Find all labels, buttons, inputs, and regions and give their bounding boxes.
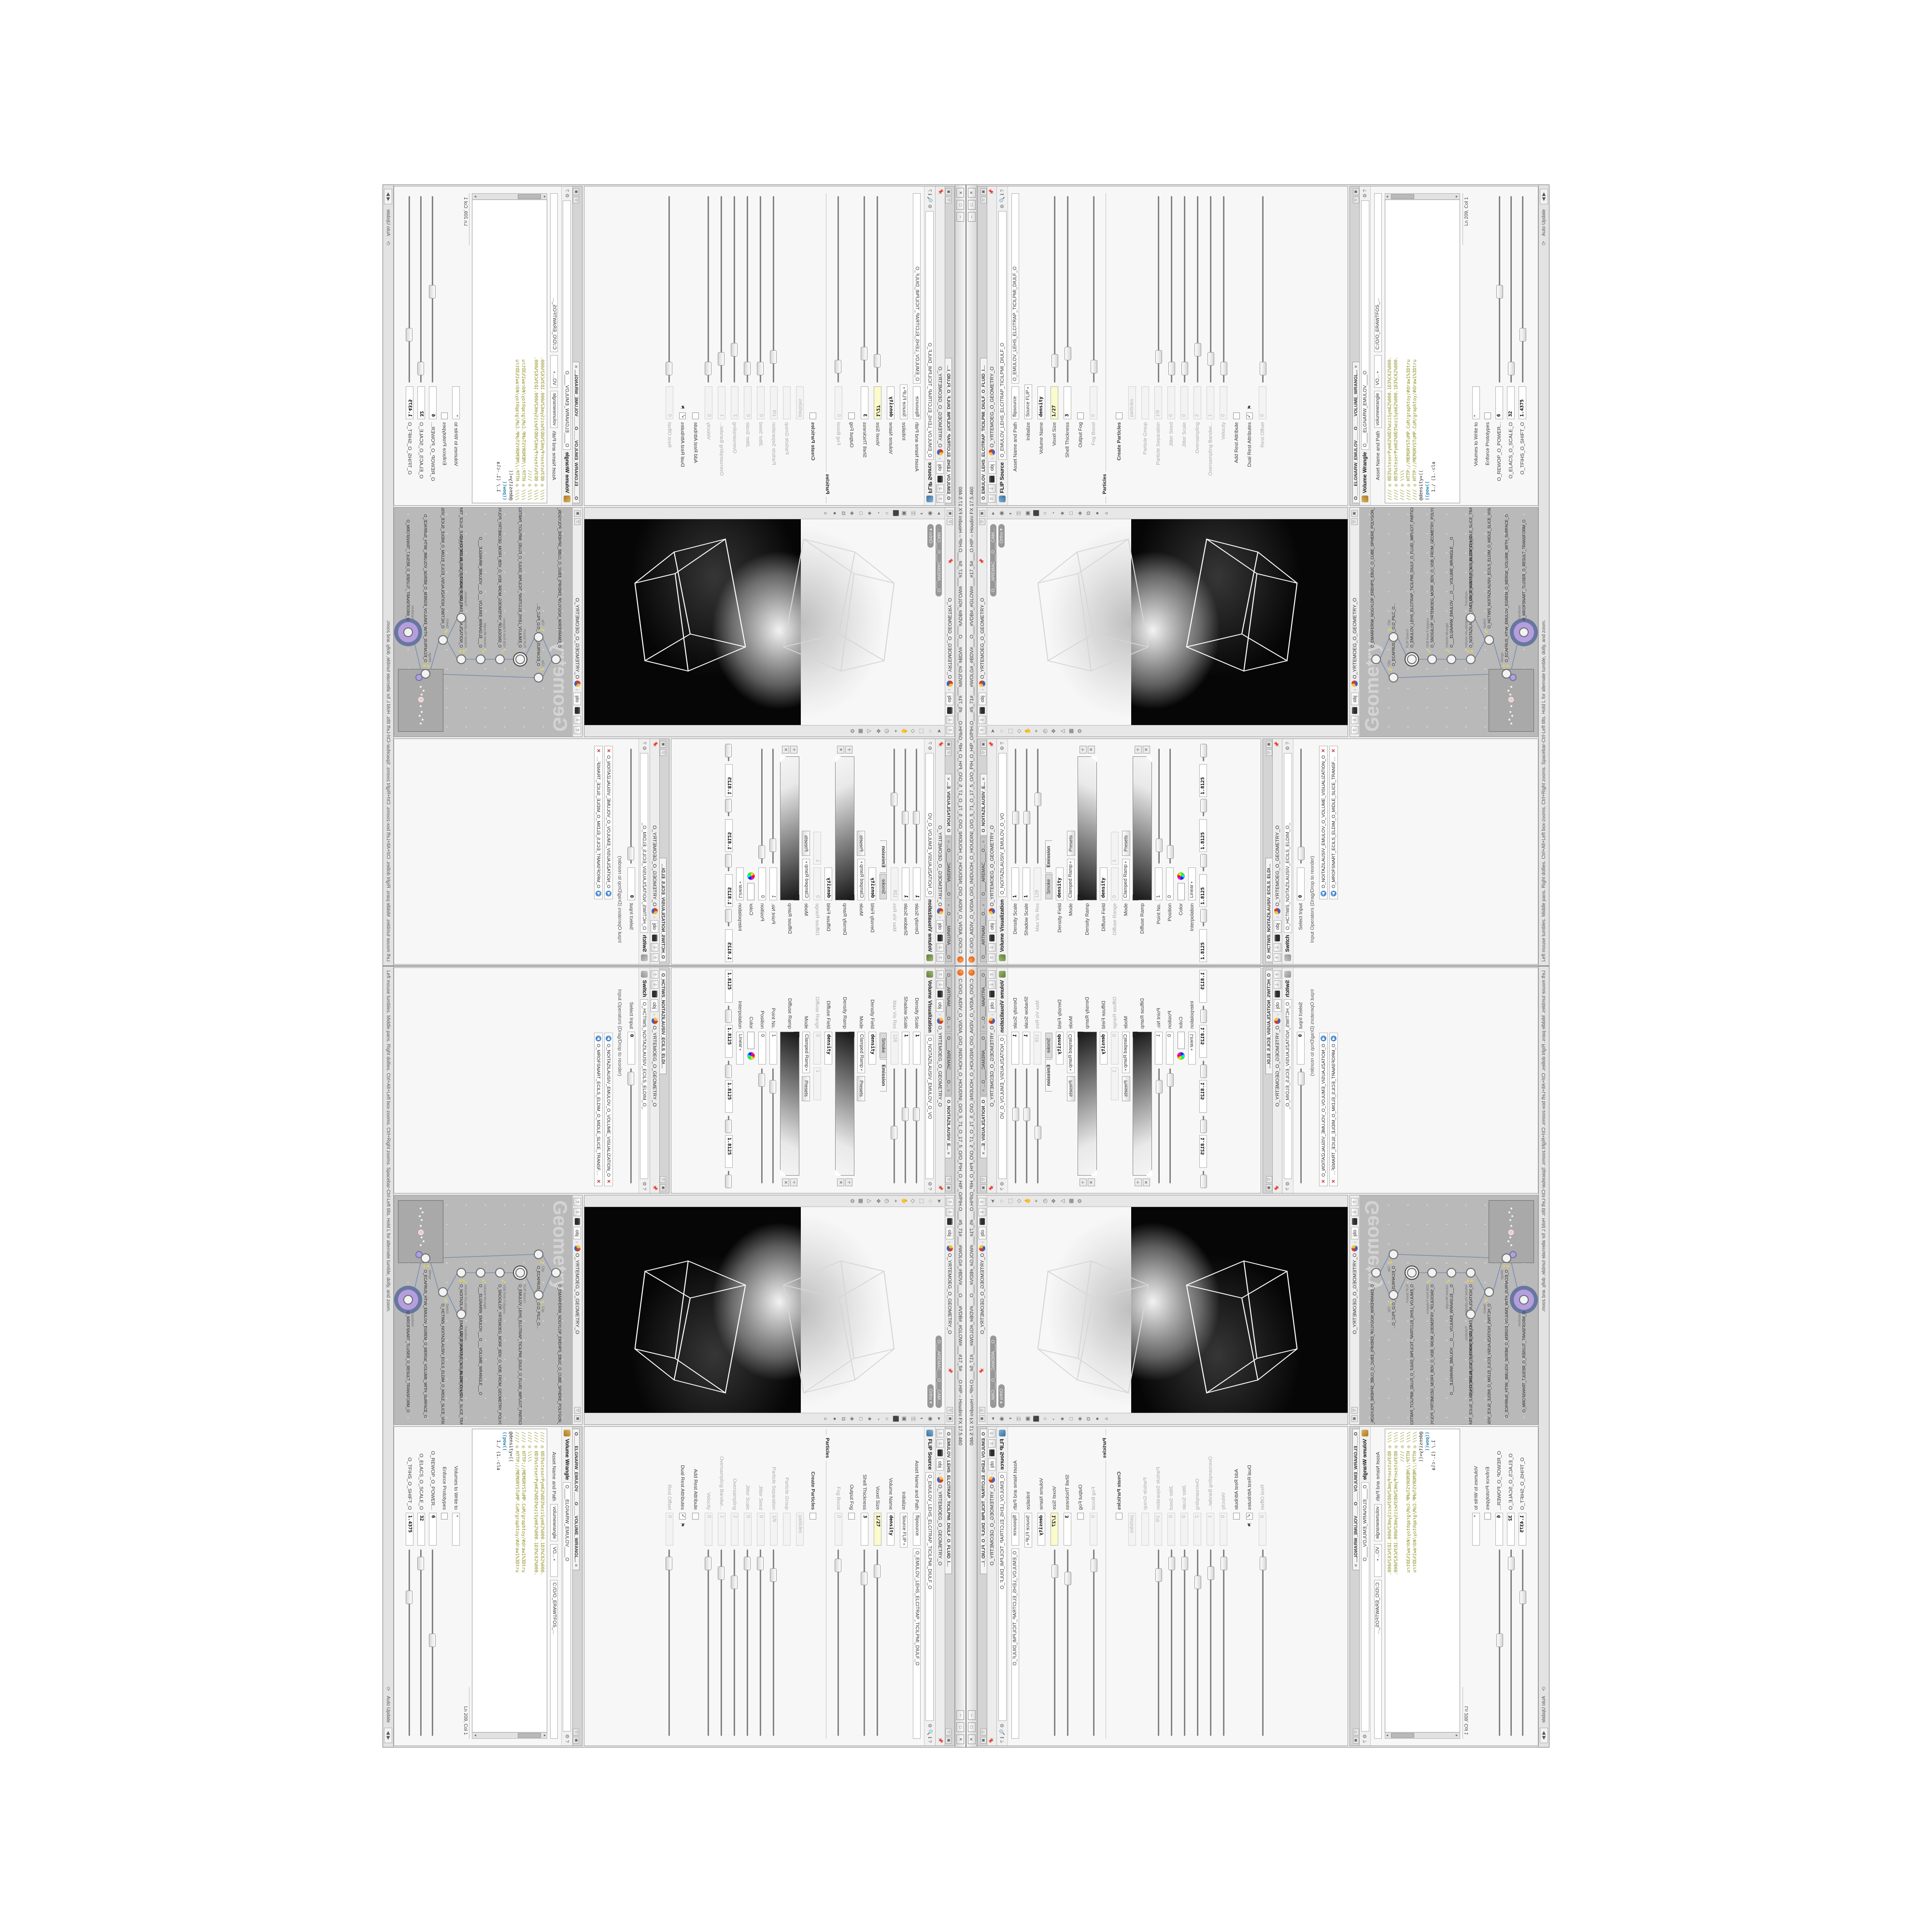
dropdown-field[interactable]: Linear (736, 867, 744, 900)
corner-scroll-chip[interactable]: ◀ ▶ (384, 1728, 392, 1743)
network-node[interactable] (515, 1268, 525, 1278)
delete-point-button[interactable]: ✕ (782, 1179, 789, 1186)
value-field[interactable]: 1 (1155, 1032, 1163, 1065)
breadcrumb-context[interactable]: obj (979, 693, 986, 705)
presets-button[interactable]: Presets (857, 831, 866, 856)
pane-maximize-icon[interactable]: ▣ (947, 1415, 953, 1422)
slider-handle[interactable] (913, 1108, 920, 1121)
viewport-tool-icon[interactable]: ▸ (936, 1418, 942, 1421)
viewport-tool-icon[interactable]: ▣ (1025, 511, 1031, 515)
value-field[interactable]: particles (1128, 386, 1136, 419)
library-path-field[interactable]: C:/O/O_ERAWTFOS_... (550, 1580, 558, 1739)
nav-up-icon[interactable]: ⇧ (574, 726, 582, 734)
ramp-handle[interactable] (1078, 1032, 1083, 1037)
help-icon[interactable]: ? (1000, 1187, 1005, 1190)
delete-point-button[interactable]: ✕ (1143, 1179, 1150, 1186)
viewport-tool-icon[interactable]: ▦ (858, 1198, 864, 1203)
node-flag-dot[interactable] (423, 1265, 426, 1267)
camera-pill[interactable]: Ortho ▾ (998, 524, 1005, 548)
param-slider[interactable] (1093, 1549, 1094, 1736)
network-node[interactable] (1407, 1268, 1417, 1278)
nav-down-icon[interactable]: ⇩ (1274, 980, 1281, 989)
viewport-tool-icon[interactable]: ● (1094, 511, 1100, 515)
viewport-tool-icon[interactable]: ▸ (990, 1418, 996, 1421)
ramp-handle[interactable] (1091, 756, 1097, 762)
value-field[interactable]: 0 (627, 867, 635, 900)
value-field[interactable]: 1/9 (770, 1513, 778, 1546)
pane-tab[interactable]: O_HCTIWS_NOITAZILAUSIV_ECILS_ELDIM_O_MID… (660, 858, 667, 962)
camera-pill[interactable]: O___AREMAC___O___CAM... (990, 1335, 996, 1408)
code-scrollbar[interactable]: ▲▼ (1385, 1733, 1460, 1739)
folder-tab[interactable]: Emission (1045, 1059, 1052, 1091)
slider-handle[interactable] (406, 1591, 413, 1604)
value-field[interactable]: 0 (1297, 867, 1305, 900)
search-icon[interactable]: 🔍 (1000, 1729, 1005, 1735)
viewport-tool-icon[interactable]: ⌖ (1034, 1199, 1039, 1202)
node-flag-dot[interactable] (427, 1265, 429, 1267)
camera-pill[interactable]: Ortho ▾ (927, 524, 934, 548)
value-field[interactable]: 0 (744, 1513, 752, 1546)
param-slider[interactable] (838, 1549, 839, 1736)
param-slider[interactable] (1203, 1171, 1204, 1183)
viewport-tool-icon[interactable]: ✋ (901, 728, 907, 735)
network-minimap[interactable] (1489, 1200, 1534, 1263)
value-field[interactable]: 2 (1193, 1513, 1201, 1546)
sync-icon[interactable]: ⟳ (1541, 241, 1547, 245)
maximize-button[interactable]: □ (968, 200, 976, 210)
help-icon[interactable]: ? (565, 1740, 570, 1743)
network-node[interactable] (403, 627, 413, 637)
pane-tab[interactable]: O____ARTNAM____O...✕ (980, 900, 987, 962)
asset-name-field[interactable]: flipsource (913, 386, 921, 419)
ramp-handle[interactable] (780, 756, 786, 762)
pane-collapse-icon[interactable]: ▽ (660, 749, 666, 756)
viewport-tool-icon[interactable]: ⬛ (1034, 1416, 1039, 1422)
pin-icon[interactable]: 📌 (938, 1737, 943, 1743)
value-field[interactable]: 1 (1023, 1032, 1030, 1065)
folder-tab[interactable]: Emission (1045, 840, 1052, 872)
asset-path-field[interactable]: O_EMULOV_LEHS_ELCITRAP_TICILPMI_DIULF_O (913, 1548, 921, 1739)
param-slider[interactable] (747, 1549, 749, 1736)
value-field[interactable]: * (452, 1513, 460, 1546)
slider-handle[interactable] (874, 354, 881, 368)
delete-point-button[interactable]: ✕ (782, 746, 789, 753)
remove-input-icon[interactable]: ✕ (606, 749, 611, 753)
gear-icon[interactable]: ⚙ (1000, 1723, 1005, 1728)
run-over-dropdown[interactable]: VO... (550, 355, 558, 388)
slider-handle[interactable] (705, 362, 712, 375)
gear-icon[interactable]: ⚙ (1363, 1734, 1368, 1738)
param-slider[interactable] (1210, 1549, 1211, 1736)
value-field[interactable]: 1/9 (770, 386, 778, 419)
ramp-handle[interactable] (1091, 1170, 1097, 1176)
nav-up-icon[interactable]: ⇧ (1351, 726, 1359, 734)
viewport-tool-icon[interactable]: ▣ (901, 511, 907, 515)
viewport-tool-icon[interactable]: ⌖ (1034, 729, 1039, 732)
network-node[interactable] (534, 632, 543, 642)
value-field[interactable]: 2 (1193, 386, 1201, 419)
add-point-button[interactable]: ＋ (845, 746, 852, 753)
pane-tab[interactable]: O_EMULOV_LEHS_ELCITRAP_TICILPMI_DIULF_O_… (980, 1429, 987, 1574)
slider-handle[interactable] (1168, 362, 1175, 375)
pane-maximize-icon[interactable]: ▣ (980, 1737, 987, 1744)
color-wheel-icon[interactable] (1177, 872, 1185, 880)
slider-handle[interactable] (418, 362, 425, 375)
slider-handle[interactable] (1200, 909, 1207, 923)
dropdown-field[interactable]: Source FLIP (900, 1513, 908, 1548)
value-field[interactable]: 0 (1167, 1513, 1175, 1546)
network-canvas[interactable]: Geometry O_EMARFERIW_NOGYLOP_EREHPS_EBUC… (1360, 1195, 1538, 1424)
checkbox[interactable] (1484, 1513, 1491, 1520)
param-slider[interactable] (1037, 749, 1038, 864)
minimize-button[interactable]: – (957, 1710, 965, 1720)
slider-handle[interactable] (1200, 744, 1207, 757)
viewport-tool-icon[interactable]: ★ (1060, 511, 1065, 516)
breadcrumb-context[interactable]: obj (1351, 693, 1359, 705)
pane-maximize-icon[interactable]: ▣ (947, 510, 953, 517)
help-icon[interactable]: ? (927, 189, 933, 192)
slider-handle[interactable] (1051, 1564, 1058, 1578)
viewport-tool-icon[interactable]: □ (1068, 511, 1074, 515)
checkbox[interactable] (848, 1513, 855, 1520)
asset-name-field[interactable]: volumewrangle (550, 1504, 558, 1541)
slider-handle[interactable] (1065, 347, 1071, 360)
value-field[interactable] (783, 386, 791, 419)
value-field[interactable]: 1.8125 (725, 819, 733, 852)
viewport-tool-icon[interactable]: ◉ (999, 1417, 1005, 1421)
network-node[interactable] (1502, 1253, 1511, 1263)
node-flag-dot[interactable] (540, 1302, 542, 1304)
viewport-tool-icon[interactable]: ● (832, 511, 838, 515)
remove-input-icon[interactable]: ✕ (1321, 1179, 1326, 1183)
breadcrumb-context[interactable]: obj (988, 920, 996, 933)
breadcrumb[interactable]: O_YRTEMOEG_O_GEOMETRY_O (980, 598, 985, 679)
viewport-tool-icon[interactable]: △ (1060, 729, 1065, 733)
dropdown-field[interactable]: Clamped Ramp (802, 1032, 810, 1073)
slider-handle[interactable] (1035, 1126, 1041, 1139)
help-icon[interactable]: ? (642, 1187, 647, 1190)
nav-up-icon[interactable]: ⇧ (1274, 970, 1281, 979)
presets-button[interactable]: Presets (857, 1076, 866, 1101)
viewport-tool-icon[interactable]: ◌ (927, 1199, 933, 1203)
viewport-tool-icon[interactable]: ⬚ (919, 1198, 924, 1203)
param-slider[interactable] (721, 196, 723, 383)
value-field[interactable]: 0 (705, 1513, 712, 1546)
help-icon[interactable]: ? (927, 742, 933, 745)
param-slider[interactable] (1522, 196, 1523, 383)
value-field[interactable]: 1/9 (1154, 1513, 1162, 1546)
code-scrollbar[interactable]: ▲▼ (1385, 193, 1460, 199)
node-flag-dot[interactable] (1390, 628, 1392, 630)
viewport-tool-icon[interactable]: ▸ (936, 512, 942, 515)
network-canvas[interactable]: Geometry O_EMARFERIW_NOGYLOP_EREHPS_EBUC… (394, 508, 572, 737)
slider-handle[interactable] (1508, 1557, 1515, 1570)
param-slider[interactable] (1054, 196, 1055, 383)
viewport-tool-icon[interactable]: ⚙ (1077, 1199, 1083, 1204)
value-field[interactable]: 1.8125 (1199, 764, 1207, 797)
node-flag-dot[interactable] (501, 1279, 504, 1282)
help-icon[interactable]: ? (1363, 1740, 1368, 1743)
node-flag-dot[interactable] (482, 1279, 484, 1282)
viewport-tool-icon[interactable]: ⚙ (1077, 729, 1083, 734)
param-slider[interactable] (1158, 1068, 1160, 1183)
value-field[interactable]: 0 (813, 867, 821, 900)
breadcrumb-context[interactable]: obj (937, 461, 944, 474)
param-slider[interactable] (1054, 1549, 1055, 1736)
pane-tab[interactable]: O_NOITAZILAUSIV_E...✕ (980, 774, 987, 836)
value-field[interactable]: 0 (1259, 1513, 1266, 1546)
ramp-widget[interactable] (835, 756, 854, 900)
viewport-tool-icon[interactable]: ▵ (823, 512, 829, 515)
gear-icon[interactable]: ⚙ (927, 746, 933, 751)
node-flag-dot[interactable] (1503, 1265, 1505, 1267)
network-node[interactable] (456, 654, 466, 664)
code-scrollbar[interactable]: ▲▼ (472, 1733, 547, 1739)
operator-name-field[interactable]: O____ELGNARW_EMULOV____O (1361, 200, 1369, 450)
ramp-widget[interactable] (835, 1032, 854, 1176)
network-node[interactable] (421, 669, 430, 679)
slider-handle[interactable] (902, 1108, 909, 1121)
nav-down-icon[interactable]: ⇩ (1274, 943, 1281, 952)
dropdown-field[interactable]: Clamped Ramp (802, 859, 810, 900)
help-icon[interactable]: ? (927, 1187, 933, 1190)
viewport-tool-icon[interactable]: ◌ (999, 729, 1005, 733)
slider-handle[interactable] (1200, 1120, 1207, 1133)
dropdown-field[interactable]: Clamped Ramp (1067, 859, 1075, 900)
nav-up-icon[interactable]: ⇧ (937, 1429, 944, 1437)
help-icon[interactable]: ? (642, 742, 647, 745)
viewport-tool-icon[interactable]: ✥ (875, 729, 881, 733)
value-field[interactable]: 0 (705, 386, 712, 419)
pane-tab[interactable]: O____AREMAC____O...✕ (945, 837, 952, 899)
slider-handle[interactable] (1520, 328, 1526, 341)
vex-code-box[interactable]: //// ◎ 0D3%steserPym62%0D3%eziSym62%000.… (1385, 1429, 1460, 1733)
presets-button[interactable]: Presets (1067, 831, 1075, 856)
slider-handle[interactable] (1023, 811, 1030, 824)
slider-handle[interactable] (1065, 1572, 1071, 1585)
checkbox[interactable] (692, 412, 699, 419)
nav-up-icon[interactable]: ⇧ (937, 970, 944, 979)
viewport-tool-icon[interactable]: ★ (1060, 1417, 1065, 1421)
breadcrumb-context[interactable]: obj (946, 1227, 954, 1239)
library-path-field[interactable]: C:/O/O_ERAWTFOS_... (1374, 1580, 1382, 1739)
nav-up-icon[interactable]: ⇧ (651, 953, 659, 962)
checkbox[interactable] (1077, 412, 1084, 419)
viewport-render[interactable]: O___AREMAC___O___CAM...Ortho ▾ (987, 1207, 1348, 1413)
viewport-tool-icon[interactable]: ◐ (1008, 511, 1013, 515)
help-icon[interactable]: ? (927, 1740, 933, 1743)
param-slider[interactable] (1197, 196, 1198, 383)
slider-handle[interactable] (725, 1175, 732, 1188)
nav-up-icon[interactable]: ⇧ (946, 726, 954, 734)
viewport-tool-icon[interactable]: ◴ (884, 1199, 890, 1204)
value-field[interactable]: 0 (1090, 1513, 1097, 1546)
operator-name-field[interactable]: O_NOITAZILAUSIV_EMULOV_O_VO (926, 1035, 934, 1179)
viewport-tool-icon[interactable]: ✋ (901, 1198, 907, 1205)
auto-update-selector[interactable]: Auto Update (385, 1696, 391, 1723)
value-field[interactable]: density (887, 386, 895, 419)
value-field[interactable]: 1.8125 (725, 1025, 733, 1058)
close-button[interactable]: ✕ (968, 188, 976, 198)
slider-handle[interactable] (1221, 1557, 1227, 1570)
value-field[interactable]: 1.8125 (1199, 874, 1207, 907)
value-field[interactable]: 0 (1111, 1032, 1119, 1065)
ramp-handle[interactable] (849, 895, 854, 900)
param-slider[interactable] (409, 1549, 411, 1736)
pane-collapse-icon[interactable]: ▽ (573, 197, 579, 203)
node-flag-dot[interactable] (444, 1299, 447, 1301)
slider-handle[interactable] (770, 1080, 777, 1094)
corner-scroll-chip[interactable]: ◀ ▶ (1540, 189, 1548, 204)
slider-handle[interactable] (770, 1568, 777, 1582)
slider-handle[interactable] (1200, 799, 1207, 812)
value-field[interactable]: 0 (1259, 386, 1266, 419)
network-node[interactable] (421, 1253, 430, 1263)
breadcrumb-context[interactable]: obj (979, 1227, 986, 1239)
pin-icon[interactable]: 📌 (980, 558, 985, 564)
checkbox[interactable] (441, 412, 448, 419)
value-field[interactable]: 6 (1495, 1513, 1503, 1546)
nav-up-icon[interactable]: ⇧ (988, 953, 996, 962)
color-swatch[interactable] (748, 883, 755, 900)
network-node[interactable] (534, 1250, 543, 1259)
value-field[interactable]: 3 (861, 386, 868, 419)
pin-icon[interactable]: 📌 (989, 741, 994, 747)
help-icon[interactable]: ? (1363, 189, 1368, 192)
folder-tab[interactable]: Smoke (1045, 1033, 1052, 1058)
reorder-icon[interactable]: ◀ (606, 1036, 611, 1041)
slider-handle[interactable] (1207, 352, 1214, 366)
param-slider[interactable] (1203, 859, 1204, 871)
pane-collapse-icon[interactable]: ▽ (979, 518, 985, 525)
nav-down-icon[interactable]: ⇩ (651, 943, 659, 952)
param-slider[interactable] (1015, 749, 1016, 864)
remove-input-icon[interactable]: ✕ (596, 749, 601, 753)
run-over-dropdown[interactable]: VO... (1374, 355, 1382, 388)
color-wheel-icon[interactable] (1177, 1052, 1185, 1060)
pane-maximize-icon[interactable]: ▣ (945, 741, 952, 748)
value-field[interactable]: 0 (1297, 1032, 1305, 1065)
viewport-tool-icon[interactable]: ▵ (1103, 1418, 1109, 1421)
param-slider[interactable] (1171, 1549, 1172, 1736)
value-field[interactable]: 1 (913, 1032, 921, 1065)
network-node[interactable] (1389, 1250, 1398, 1259)
value-field[interactable]: * (1472, 1513, 1480, 1546)
param-slider[interactable] (877, 196, 879, 383)
tab-close-icon[interactable]: ✕ (946, 840, 951, 843)
value-field[interactable]: density (824, 1032, 832, 1065)
tab-close-icon[interactable]: ✕ (981, 903, 986, 907)
value-field[interactable]: 0 (1220, 386, 1227, 419)
param-slider[interactable] (1158, 749, 1160, 864)
param-slider[interactable] (669, 196, 670, 383)
value-field[interactable]: density (1100, 867, 1108, 900)
param-slider[interactable] (1262, 1549, 1264, 1736)
network-node[interactable] (438, 1287, 448, 1297)
delete-point-button[interactable]: ✕ (837, 746, 844, 753)
viewport-tool-icon[interactable]: ◌ (999, 1199, 1005, 1203)
vex-code-box[interactable]: //// ◎ 0D3%steserPym62%0D3%eziSym62%000.… (1385, 199, 1460, 503)
value-field[interactable]: 0 (1090, 386, 1097, 419)
pane-collapse-icon[interactable]: ▽ (947, 1407, 953, 1414)
asset-name-field[interactable]: volumewrangle (550, 391, 558, 428)
tab-close-icon[interactable]: ✕ (981, 840, 986, 843)
param-slider[interactable] (762, 749, 763, 864)
tab-close-icon[interactable]: ✕ (981, 1089, 986, 1092)
param-slider[interactable] (1037, 1068, 1038, 1183)
asset-name-field[interactable]: volumewrangle (1374, 391, 1382, 428)
viewport-tool-icon[interactable]: ◇ (1016, 729, 1022, 733)
pane-maximize-icon[interactable]: ▣ (573, 1737, 579, 1744)
help-icon[interactable]: ? (565, 189, 570, 192)
value-field[interactable]: 128 (891, 1032, 898, 1065)
viewport-tool-icon[interactable]: ✋ (1025, 728, 1031, 735)
param-slider[interactable] (905, 749, 907, 864)
operator-name-field[interactable]: O_HCTIWS_NOITAZILAUSIV_ECILS_ELDIM_O_ (1284, 999, 1292, 1179)
folder-tab[interactable]: Emission (880, 1059, 887, 1091)
param-slider[interactable] (1067, 1549, 1068, 1736)
slider-handle[interactable] (1508, 362, 1515, 375)
checkbox[interactable] (1246, 1513, 1253, 1520)
nav-up-icon[interactable]: ⇧ (946, 1198, 954, 1206)
pane-maximize-icon[interactable]: ▣ (1351, 510, 1358, 517)
viewport-tool-icon[interactable]: ○ (1042, 511, 1048, 515)
value-field[interactable]: 1 (913, 867, 921, 900)
slider-handle[interactable] (891, 1126, 898, 1139)
value-field[interactable]: 1 (1023, 867, 1030, 900)
breadcrumb[interactable]: O_YRTEMOEG_O_GEOMETRY_O (938, 825, 943, 907)
breadcrumb[interactable]: O_YRTEMOEG_O_GEOMETRY_O (989, 825, 995, 907)
slider-handle[interactable] (1194, 343, 1201, 356)
ramp-widget[interactable] (1078, 1032, 1097, 1176)
pane-tab[interactable]: O_NOITAZILAUSIV_E...✕ (945, 774, 952, 836)
input-operator-row[interactable]: ◀O_NOITAZILAUSIV_EMULOV_O_VOLUME_VISUALI… (1319, 746, 1328, 899)
slider-handle[interactable] (759, 1073, 766, 1087)
value-field[interactable]: 1.8125 (725, 1080, 733, 1113)
camera-pill[interactable]: Ortho ▾ (998, 1384, 1005, 1408)
param-slider[interactable] (1203, 1116, 1204, 1128)
minimize-button[interactable]: – (968, 212, 976, 222)
viewport-tool-icon[interactable]: ● (1094, 1417, 1100, 1421)
pane-tab[interactable]: O____ELGNARW_EMULOV____O____VOLUME_WRANG… (573, 362, 580, 503)
operator-name-field[interactable]: O_HCTIWS_NOITAZILAUSIV_ECILS_ELDIM_O_ (640, 999, 649, 1179)
viewport-tool-icon[interactable]: ⬛ (1034, 510, 1039, 517)
value-field[interactable]: 1 (1207, 1513, 1214, 1546)
input-operator-row[interactable]: ◀O_MROFSNART_ECILS_ELDIM_O_MIDLE_SLICE_T… (1329, 746, 1338, 899)
node-flag-dot[interactable] (1390, 1261, 1392, 1264)
pane-collapse-icon[interactable]: ▽ (947, 518, 953, 525)
slider-handle[interactable] (725, 799, 732, 812)
library-path-field[interactable]: C:/O/O_ERAWTFOS_... (1374, 193, 1382, 352)
viewport-tool-icon[interactable]: ⚿ (1016, 1417, 1022, 1421)
viewport-tool-icon[interactable]: ✥ (1051, 729, 1057, 733)
pin-icon[interactable]: 📌 (1275, 741, 1280, 747)
pin-icon[interactable]: 📌 (1275, 1185, 1280, 1191)
node-flag-dot[interactable] (463, 650, 465, 653)
dropdown-field[interactable]: Source FLIP (1024, 1513, 1032, 1548)
ramp-handle[interactable] (849, 1032, 854, 1037)
param-slider[interactable] (1262, 196, 1264, 383)
slider-handle[interactable] (1496, 1634, 1503, 1647)
help-icon[interactable]: ? (1285, 742, 1291, 745)
pane-maximize-icon[interactable]: ▣ (980, 1184, 987, 1191)
viewport-tool-icon[interactable]: ◴ (1042, 1199, 1048, 1204)
node-flag-dot[interactable] (459, 1279, 461, 1282)
node-flag-dot[interactable] (1485, 631, 1488, 633)
value-field[interactable]: 0 (1166, 867, 1174, 900)
viewport-tool-icon[interactable]: ◇ (1016, 1199, 1022, 1203)
viewport-tool-icon[interactable]: ◔ (875, 1417, 881, 1421)
